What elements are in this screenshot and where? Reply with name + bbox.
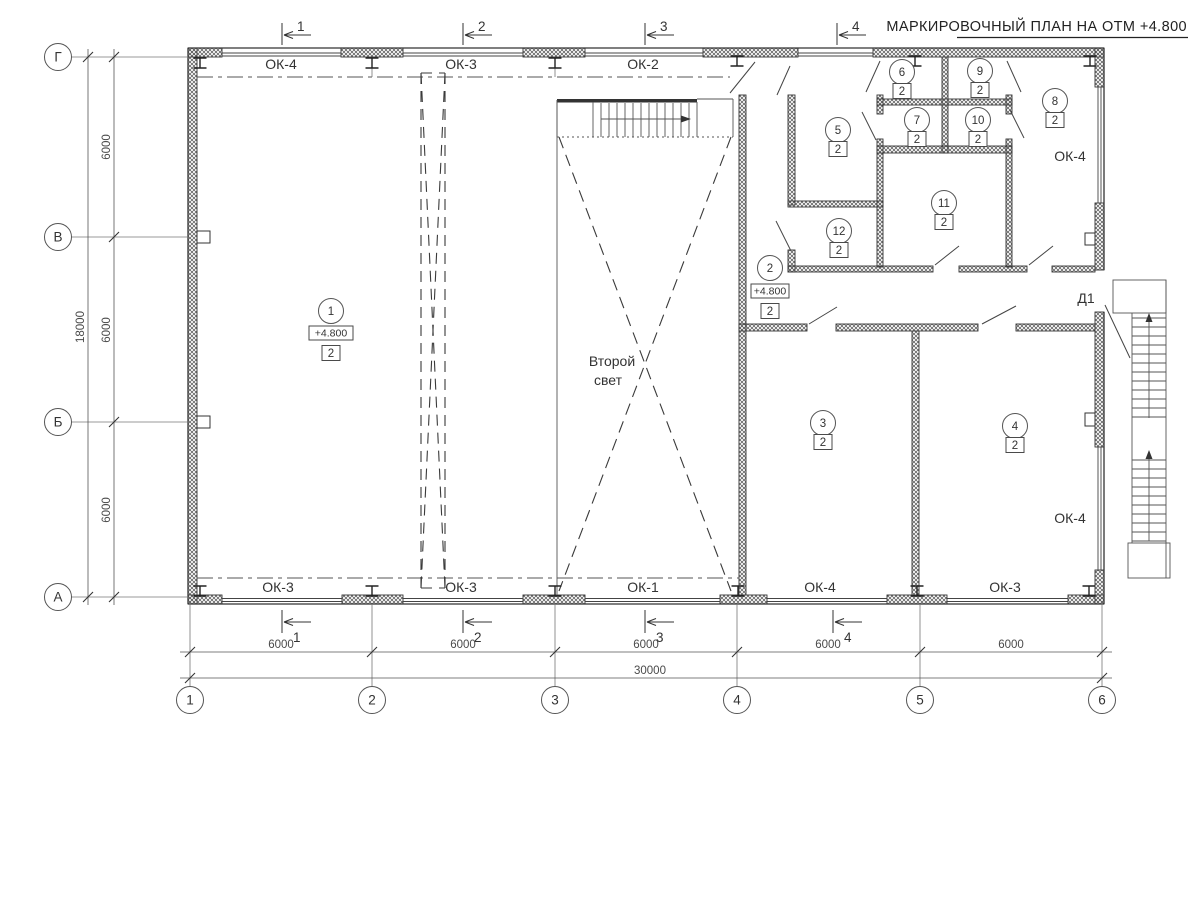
room-type: 2 <box>977 85 983 97</box>
dim-value: 6000 <box>101 134 113 160</box>
grid-axis-label: 2 <box>368 693 376 708</box>
pilaster <box>197 231 210 243</box>
dim-value: 6000 <box>101 317 113 343</box>
room-number: 12 <box>833 226 846 238</box>
dashed-opening-slot <box>421 73 445 588</box>
grid-axis-label: Б <box>54 415 63 430</box>
section-mark: 3 <box>645 19 674 45</box>
dimensions-left: 6000 6000 6000 18000 Г В Б А <box>45 44 189 611</box>
dim-value: 6000 <box>101 497 113 523</box>
section-number: 4 <box>852 19 860 34</box>
stair-treads-interior <box>601 103 689 137</box>
room-number: 2 <box>767 263 773 275</box>
section-number: 1 <box>293 630 301 645</box>
pilaster <box>1085 233 1095 245</box>
room-number: 8 <box>1052 96 1058 108</box>
dim-total: 18000 <box>75 311 87 343</box>
grid-axis-label: 5 <box>916 693 924 708</box>
room-type: 2 <box>899 86 905 98</box>
room-number: 6 <box>899 67 905 79</box>
stair-exterior <box>1113 280 1170 578</box>
section-number: 1 <box>297 19 305 34</box>
room-elevation: +4.800 <box>754 286 787 298</box>
section-mark: 2 <box>463 19 492 45</box>
room-type: 2 <box>1052 115 1058 127</box>
section-marks-top: 1 2 3 4 <box>282 19 866 45</box>
room-number: 4 <box>1012 421 1019 433</box>
window-label-bottom-5: ОК-3 <box>989 579 1021 595</box>
section-marks-bottom: 1 2 3 4 <box>282 610 862 645</box>
dim-value: 6000 <box>450 639 476 651</box>
dim-total: 30000 <box>634 665 666 677</box>
stair-up-arrow-icon <box>1146 450 1153 459</box>
grid-axis-label: 6 <box>1098 693 1106 708</box>
i-beam-column-icon <box>1083 586 1096 596</box>
grid-axis-label: А <box>53 590 62 605</box>
grid-axis-label: 4 <box>733 693 741 708</box>
window-label-bottom-2: ОК-3 <box>445 579 477 595</box>
room-type: 2 <box>820 437 826 449</box>
stair-direction-arrow-icon <box>681 116 691 123</box>
centre-lines <box>197 57 739 578</box>
room-type: 2 <box>941 217 947 229</box>
dim-value: 6000 <box>998 639 1024 651</box>
grid-axis-label: Г <box>54 50 62 65</box>
grid-axis-label: В <box>53 230 62 245</box>
room-type: 2 <box>767 306 773 318</box>
second-light-opening: Второй свет <box>557 100 731 595</box>
i-beam-column-icon <box>366 58 379 68</box>
room-number: 7 <box>914 115 920 127</box>
pilaster <box>197 416 210 428</box>
room-number: 1 <box>328 306 334 318</box>
window-label-top-1: ОК-4 <box>265 56 297 72</box>
section-number: 4 <box>844 630 852 645</box>
room-number: 5 <box>835 125 841 137</box>
room-number: 3 <box>820 418 826 430</box>
room-type: 2 <box>836 245 842 257</box>
window-label-bottom-1: ОК-3 <box>262 579 294 595</box>
floor-plan-drawing: МАРКИРОВОЧНЫЙ ПЛАН НА ОТМ +4.800 <box>0 0 1200 900</box>
floor-plan-sheet: МАРКИРОВОЧНЫЙ ПЛАН НА ОТМ +4.800 <box>0 0 1200 900</box>
window-label-top-2: ОК-3 <box>445 56 477 72</box>
i-beam-column-icon <box>731 56 744 66</box>
window-label-bottom-4: ОК-4 <box>804 579 836 595</box>
section-mark: 1 <box>282 19 311 45</box>
dim-value: 6000 <box>268 639 294 651</box>
room-number: 11 <box>938 198 950 210</box>
drawing-title: МАРКИРОВОЧНЫЙ ПЛАН НА ОТМ +4.800 <box>886 17 1187 35</box>
room-type: 2 <box>975 134 981 146</box>
room-elevation: +4.800 <box>315 328 348 340</box>
room-number: 9 <box>977 66 983 78</box>
pilaster <box>1085 413 1095 426</box>
stair-up-arrow-icon <box>1146 313 1153 322</box>
grid-axis-label: 3 <box>551 693 559 708</box>
window-label-bottom-3: ОК-1 <box>627 579 659 595</box>
dimensions-bottom: 6000 6000 6000 6000 6000 30000 1 2 3 4 5… <box>177 604 1116 714</box>
window-label-right-1: ОК-4 <box>1054 148 1086 164</box>
section-number: 2 <box>478 19 486 34</box>
room-type: 2 <box>914 134 920 146</box>
second-light-label-line1: Второй <box>589 353 635 369</box>
i-beam-column-icon <box>549 58 562 68</box>
room-number: 10 <box>972 115 985 127</box>
window-label-top-3: ОК-2 <box>627 56 659 72</box>
window-label-right-2: ОК-4 <box>1054 510 1086 526</box>
section-number: 3 <box>660 19 668 34</box>
grid-axis-label: 1 <box>186 693 194 708</box>
door-label-d1: Д1 <box>1077 290 1094 306</box>
dim-value: 6000 <box>815 639 841 651</box>
title-block: МАРКИРОВОЧНЫЙ ПЛАН НА ОТМ +4.800 <box>886 17 1188 38</box>
room-type: 2 <box>328 348 334 360</box>
second-light-label-line2: свет <box>594 372 623 388</box>
room-type: 2 <box>835 144 841 156</box>
dim-value: 6000 <box>633 639 659 651</box>
stair-interior <box>557 99 733 137</box>
section-mark: 4 <box>837 19 866 45</box>
room-type: 2 <box>1012 440 1018 452</box>
i-beam-column-icon <box>366 586 379 596</box>
